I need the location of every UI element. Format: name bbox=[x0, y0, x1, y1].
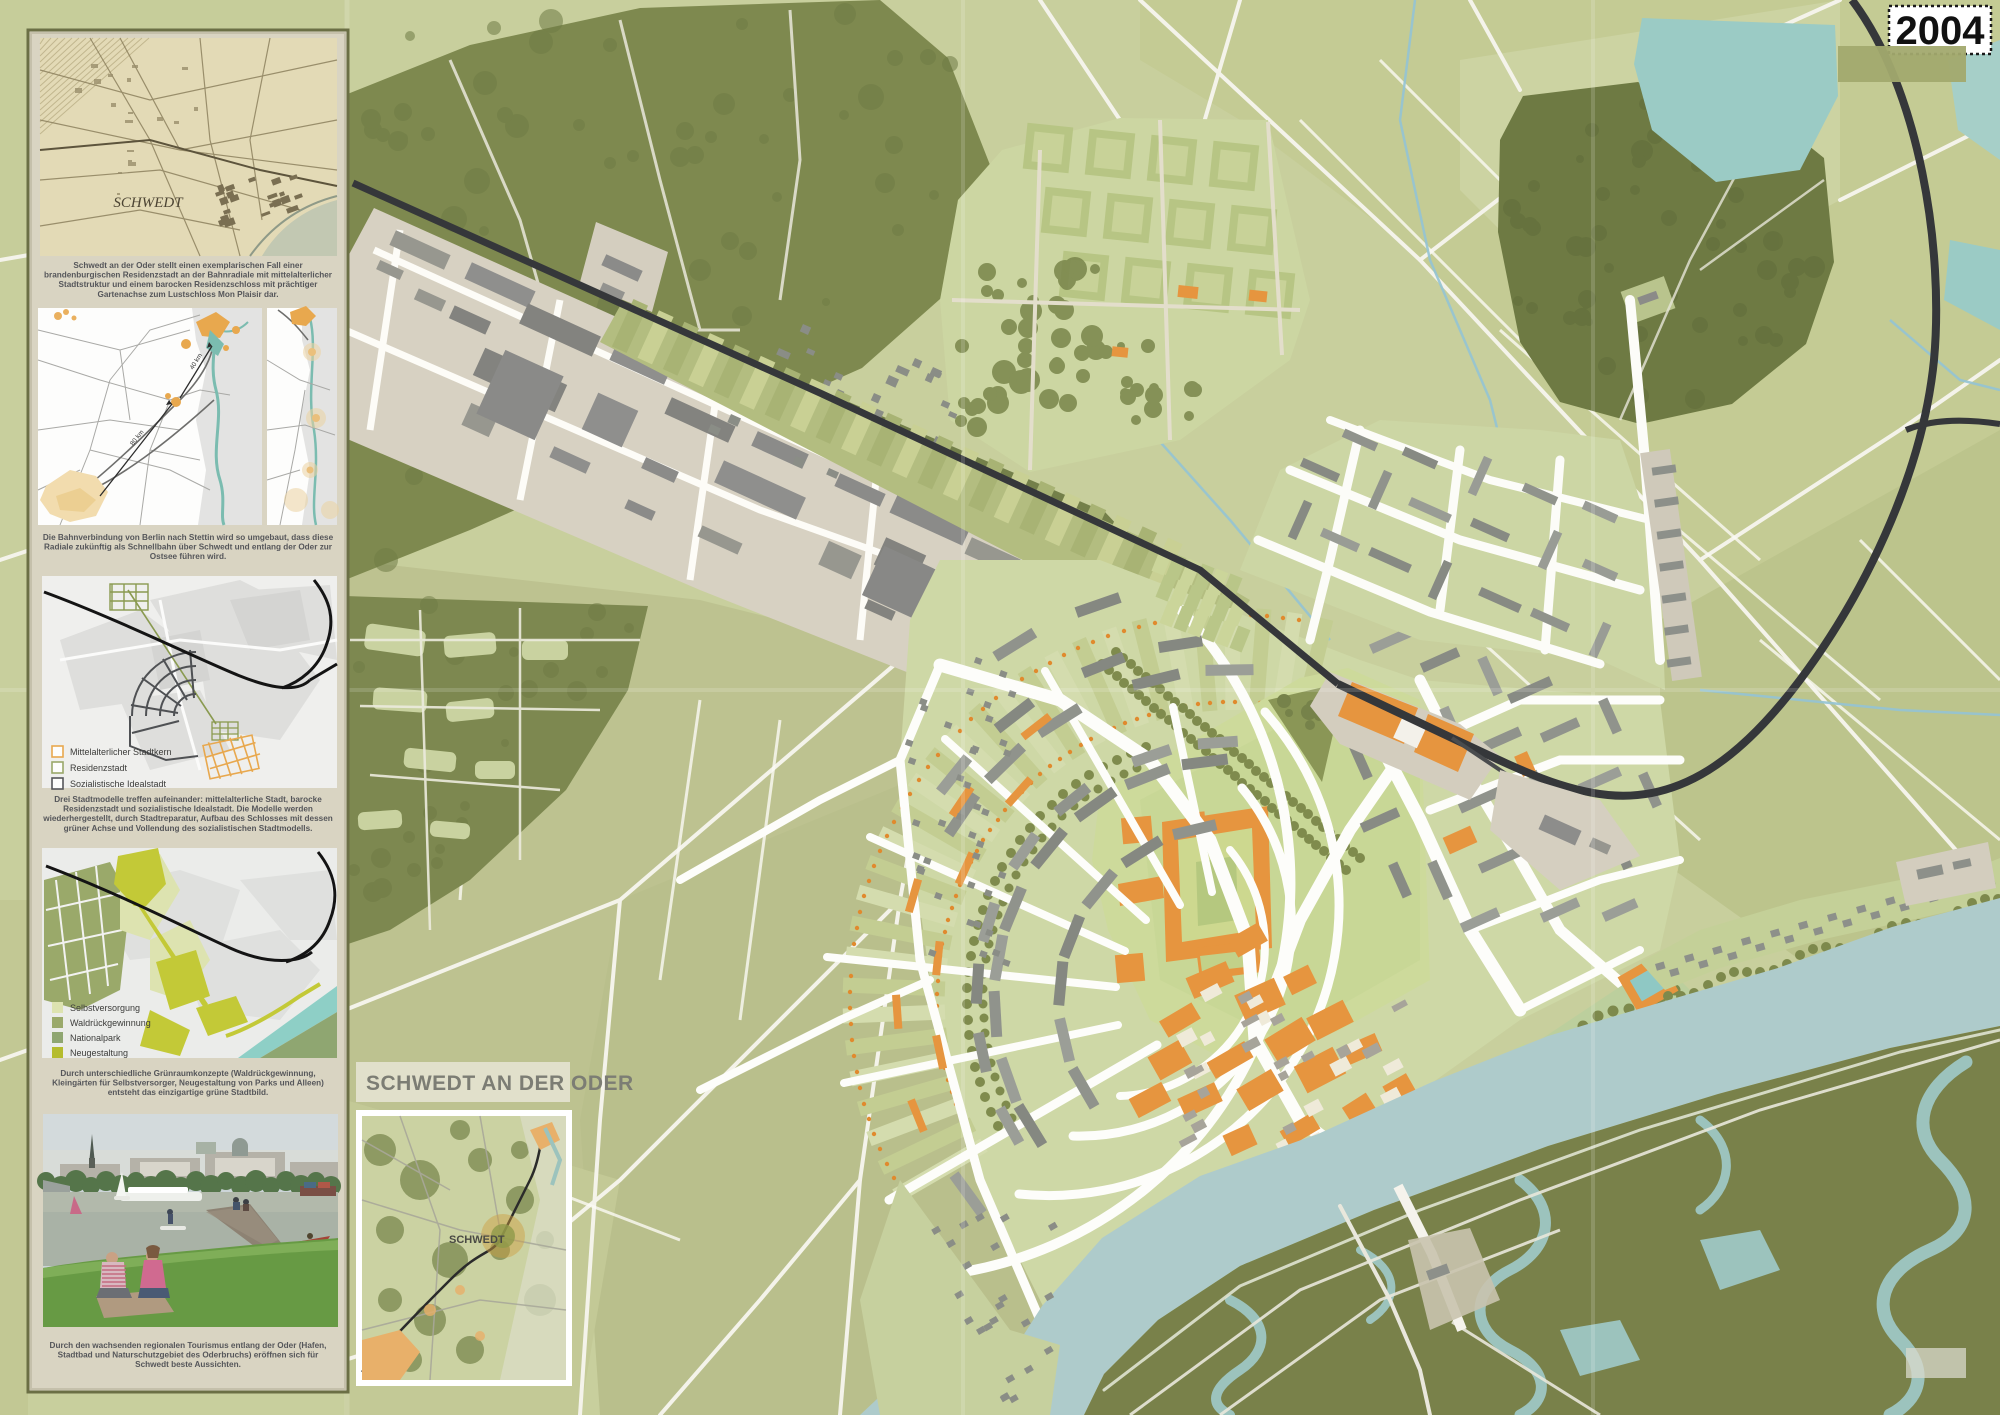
svg-text:Nationalpark: Nationalpark bbox=[70, 1033, 121, 1043]
svg-text:Sozialistische Idealstadt: Sozialistische Idealstadt bbox=[70, 779, 167, 789]
svg-text:Waldrückgewinnung: Waldrückgewinnung bbox=[70, 1018, 151, 1028]
svg-text:Drei Stadtmodelle treffen aufe: Drei Stadtmodelle treffen aufeinander: m… bbox=[42, 795, 333, 833]
svg-text:SCHWEDT AN DER ODER: SCHWEDT AN DER ODER bbox=[366, 1072, 634, 1095]
svg-text:Neugestaltung: Neugestaltung bbox=[70, 1048, 128, 1058]
svg-text:SCHWEDT: SCHWEDT bbox=[449, 1234, 505, 1246]
svg-text:SCHWEDT: SCHWEDT bbox=[113, 195, 184, 211]
svg-text:Selbstversorgung: Selbstversorgung bbox=[70, 1003, 140, 1013]
svg-text:Residenzstadt: Residenzstadt bbox=[70, 763, 128, 773]
svg-text:Mittelalterlicher Stadtkern: Mittelalterlicher Stadtkern bbox=[70, 747, 172, 757]
